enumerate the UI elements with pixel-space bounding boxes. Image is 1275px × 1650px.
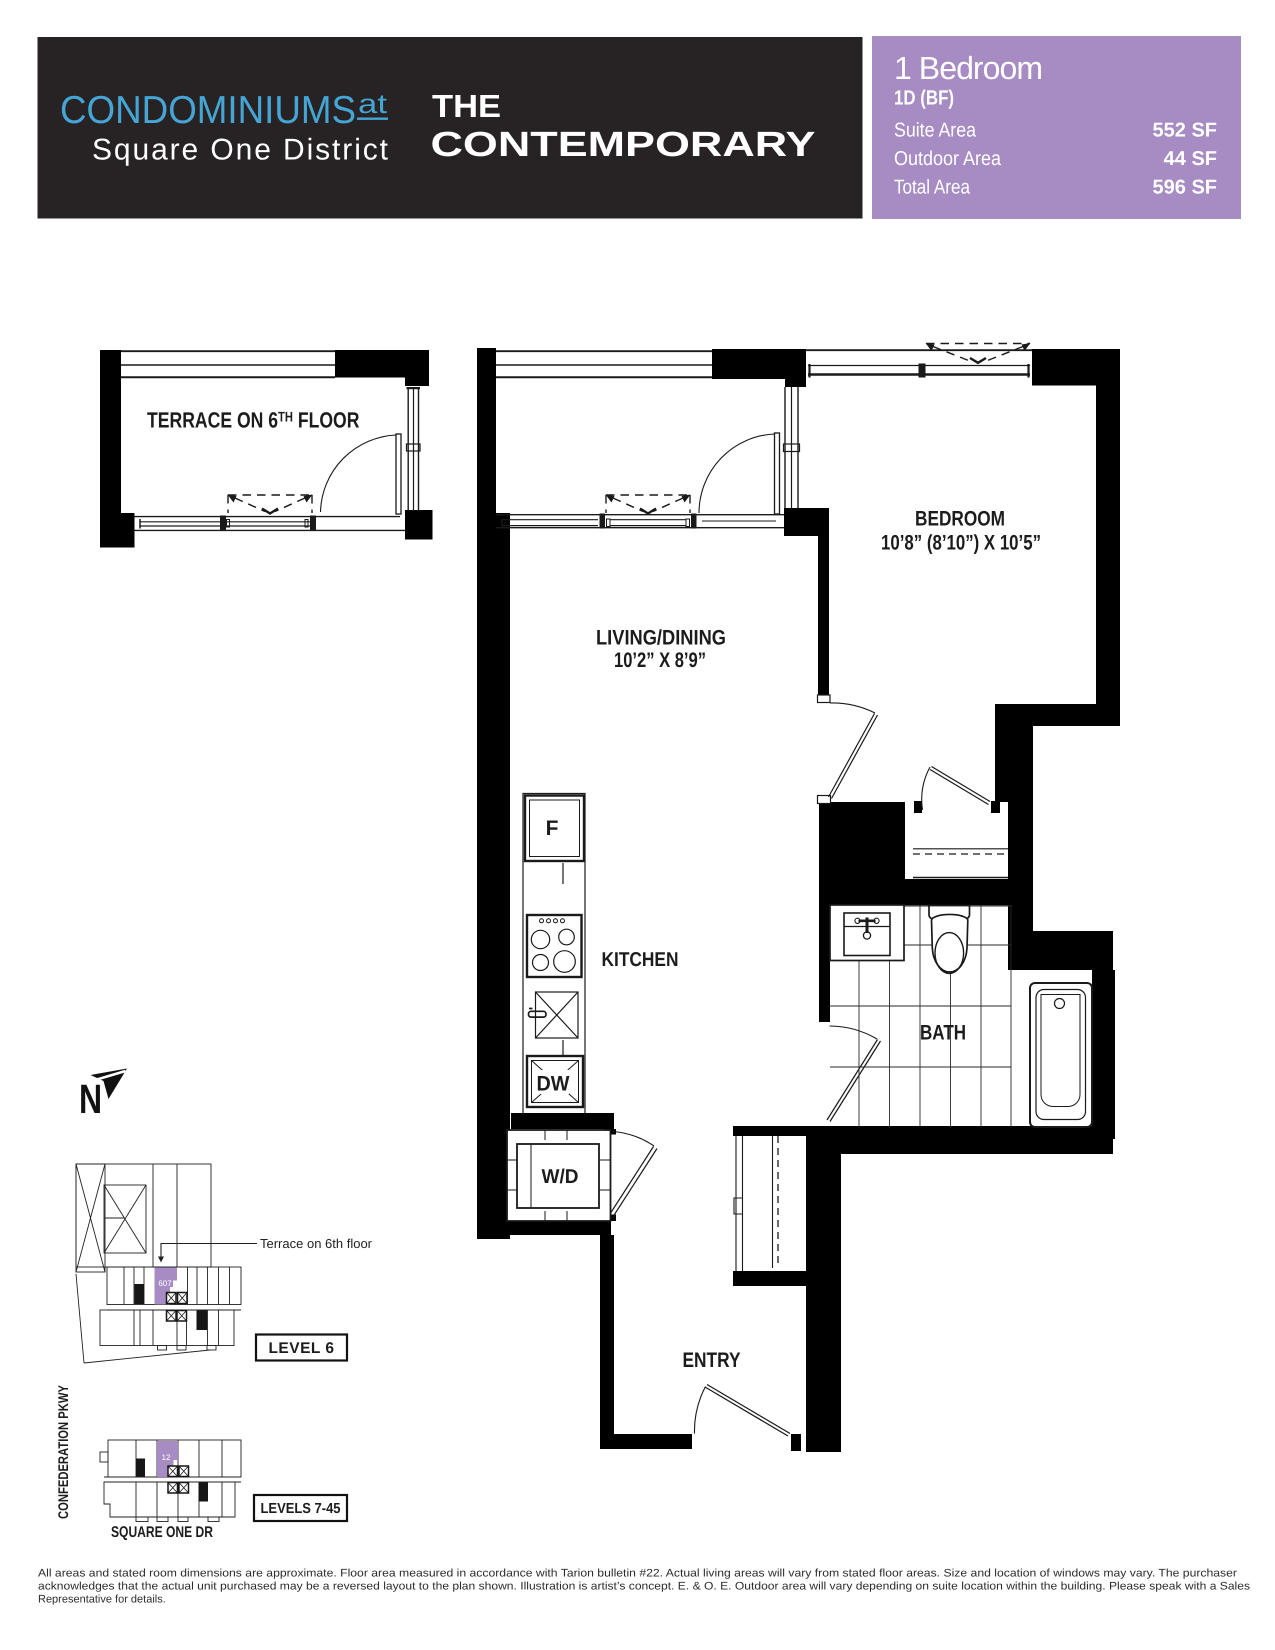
- svg-text:Total Area: Total Area: [894, 177, 971, 199]
- svg-text:1D (BF): 1D (BF): [894, 87, 954, 110]
- svg-text:Square One District: Square One District: [92, 134, 389, 167]
- svg-text:THE: THE: [432, 88, 501, 124]
- svg-text:10’2” X 8’9”: 10’2” X 8’9”: [614, 649, 706, 672]
- svg-text:CONFEDERATION PKWY: CONFEDERATION PKWY: [55, 1384, 71, 1519]
- svg-text:Outdoor Area: Outdoor Area: [894, 148, 1002, 170]
- svg-text:552 SF: 552 SF: [1153, 120, 1217, 142]
- svg-text:LEVEL 6: LEVEL 6: [268, 1340, 334, 1357]
- svg-text:acknowledges that the actual u: acknowledges that the actual unit purcha…: [38, 1581, 1251, 1593]
- svg-text:TERRACE ON 6TH FLOOR: TERRACE ON 6TH FLOOR: [147, 408, 360, 433]
- svg-text:LIVING/DINING: LIVING/DINING: [596, 627, 726, 650]
- svg-text:10’8” (8’10”) X 10’5”: 10’8” (8’10”) X 10’5”: [881, 532, 1041, 555]
- svg-text:Terrace on 6th floor: Terrace on 6th floor: [260, 1236, 373, 1251]
- svg-text:44 SF: 44 SF: [1164, 148, 1217, 170]
- svg-text:CONDOMINIUMS: CONDOMINIUMS: [60, 89, 356, 132]
- svg-text:DW: DW: [537, 1073, 570, 1096]
- svg-text:W/D: W/D: [542, 1166, 579, 1188]
- svg-text:1 Bedroom: 1 Bedroom: [894, 50, 1043, 86]
- svg-text:607: 607: [158, 1279, 172, 1288]
- svg-text:N: N: [79, 1076, 102, 1122]
- svg-text:SQUARE ONE DR: SQUARE ONE DR: [111, 1524, 213, 1541]
- svg-text:Suite Area: Suite Area: [894, 120, 977, 142]
- svg-text:All areas and stated room dime: All areas and stated room dimensions are…: [38, 1568, 1237, 1580]
- svg-text:12: 12: [162, 1453, 171, 1462]
- svg-text:LEVELS 7-45: LEVELS 7-45: [261, 1501, 341, 1517]
- svg-text:BATH: BATH: [920, 1022, 966, 1045]
- svg-text:BEDROOM: BEDROOM: [915, 508, 1005, 531]
- svg-text:at: at: [358, 89, 388, 119]
- svg-text:596 SF: 596 SF: [1153, 177, 1217, 199]
- svg-text:KITCHEN: KITCHEN: [602, 949, 679, 971]
- svg-text:F: F: [546, 817, 559, 840]
- svg-text:ENTRY: ENTRY: [683, 1349, 741, 1372]
- svg-text:CONTEMPORARY: CONTEMPORARY: [431, 125, 816, 164]
- svg-text:Representative for details.: Representative for details.: [38, 1594, 166, 1606]
